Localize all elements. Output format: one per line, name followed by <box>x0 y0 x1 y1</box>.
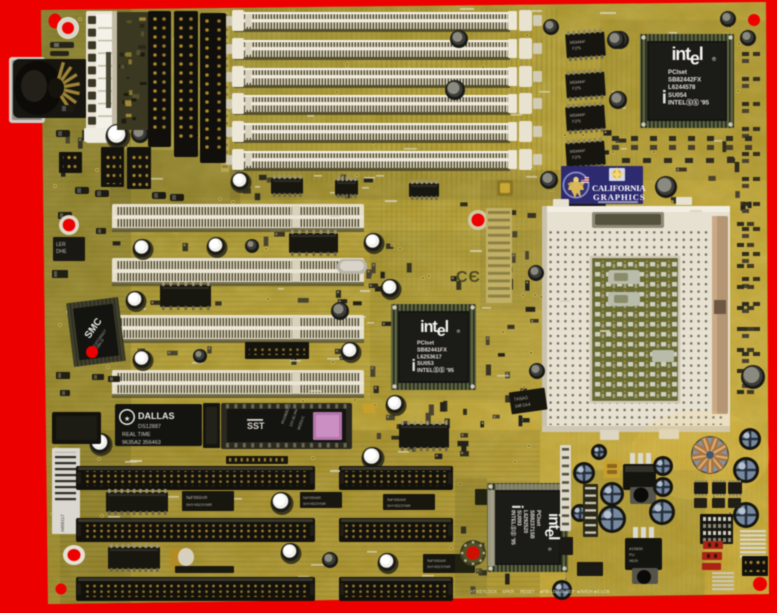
svg-text:®: ® <box>547 547 553 551</box>
svg-text:PCIset: PCIset <box>417 341 434 347</box>
svg-text:LER: LER <box>56 242 66 248</box>
svg-text:DS12887: DS12887 <box>138 424 161 430</box>
svg-text:SST: SST <box>247 421 265 431</box>
svg-text:9629: 9629 <box>629 558 639 563</box>
svg-text:SHY45Z3YMR: SHY45Z3YMR <box>303 502 326 506</box>
svg-text:SB82371SB: SB82371SB <box>529 510 535 539</box>
svg-text:F2³5: F2³5 <box>572 118 582 124</box>
svg-text:№F950AR: №F950AR <box>427 558 446 563</box>
svg-text:SU093: SU093 <box>516 510 522 526</box>
svg-text:F2³5: F2³5 <box>572 154 582 160</box>
svg-text:F2³5: F2³5 <box>572 85 582 91</box>
svg-text:SU053: SU053 <box>417 361 434 367</box>
svg-text:PCIset: PCIset <box>535 510 541 526</box>
svg-text:A15830: A15830 <box>629 546 644 551</box>
svg-text:№F950AR: №F950AR <box>303 496 321 500</box>
svg-text:№F950AR: №F950AR <box>387 497 406 502</box>
svg-text:№F950AR: №F950AR <box>186 495 208 500</box>
svg-text:CЄ: CЄ <box>456 269 481 286</box>
svg-text:L6253617: L6253617 <box>417 354 442 360</box>
svg-text:INTELⓈⓈ '95: INTELⓈⓈ '95 <box>417 366 454 374</box>
svg-text:GRAPHICS: GRAPHICS <box>593 192 646 202</box>
svg-text:AT KEYLOCK SPKR RESET: AT KEYLOCK SPKR RESET ●P/B LED SLEEP ●3V… <box>470 589 610 594</box>
svg-text:9635A2 356463: 9635A2 356463 <box>122 440 161 446</box>
svg-text:SU054: SU054 <box>668 92 687 99</box>
svg-text:REAL TIME: REAL TIME <box>122 432 151 438</box>
svg-text:PU: PU <box>629 552 635 557</box>
svg-text:★: ★ <box>124 415 130 423</box>
svg-text:SHY4523YMR: SHY4523YMR <box>186 502 212 507</box>
svg-text:SHY45Z3YMR: SHY45Z3YMR <box>387 504 411 508</box>
svg-text:L6292520: L6292520 <box>522 510 528 533</box>
svg-text:INTELⓈⓈ '95: INTELⓈⓈ '95 <box>668 97 710 106</box>
svg-text:SHY45Z3YMR: SHY45Z3YMR <box>427 565 451 569</box>
svg-text:DHE: DHE <box>56 249 67 255</box>
svg-text:L6244578: L6244578 <box>668 84 696 91</box>
svg-text:PCIset: PCIset <box>668 69 687 76</box>
svg-text:A609117: A609117 <box>60 514 65 532</box>
svg-text:DALLAS: DALLAS <box>138 411 175 421</box>
svg-text:INTELⓈⓈ '95: INTELⓈⓈ '95 <box>509 510 517 545</box>
svg-text:SB82441FX: SB82441FX <box>417 347 447 353</box>
svg-text:F2³5: F2³5 <box>572 45 582 51</box>
svg-text:®: ® <box>712 56 716 63</box>
svg-text:SB82442FX: SB82442FX <box>668 77 702 84</box>
